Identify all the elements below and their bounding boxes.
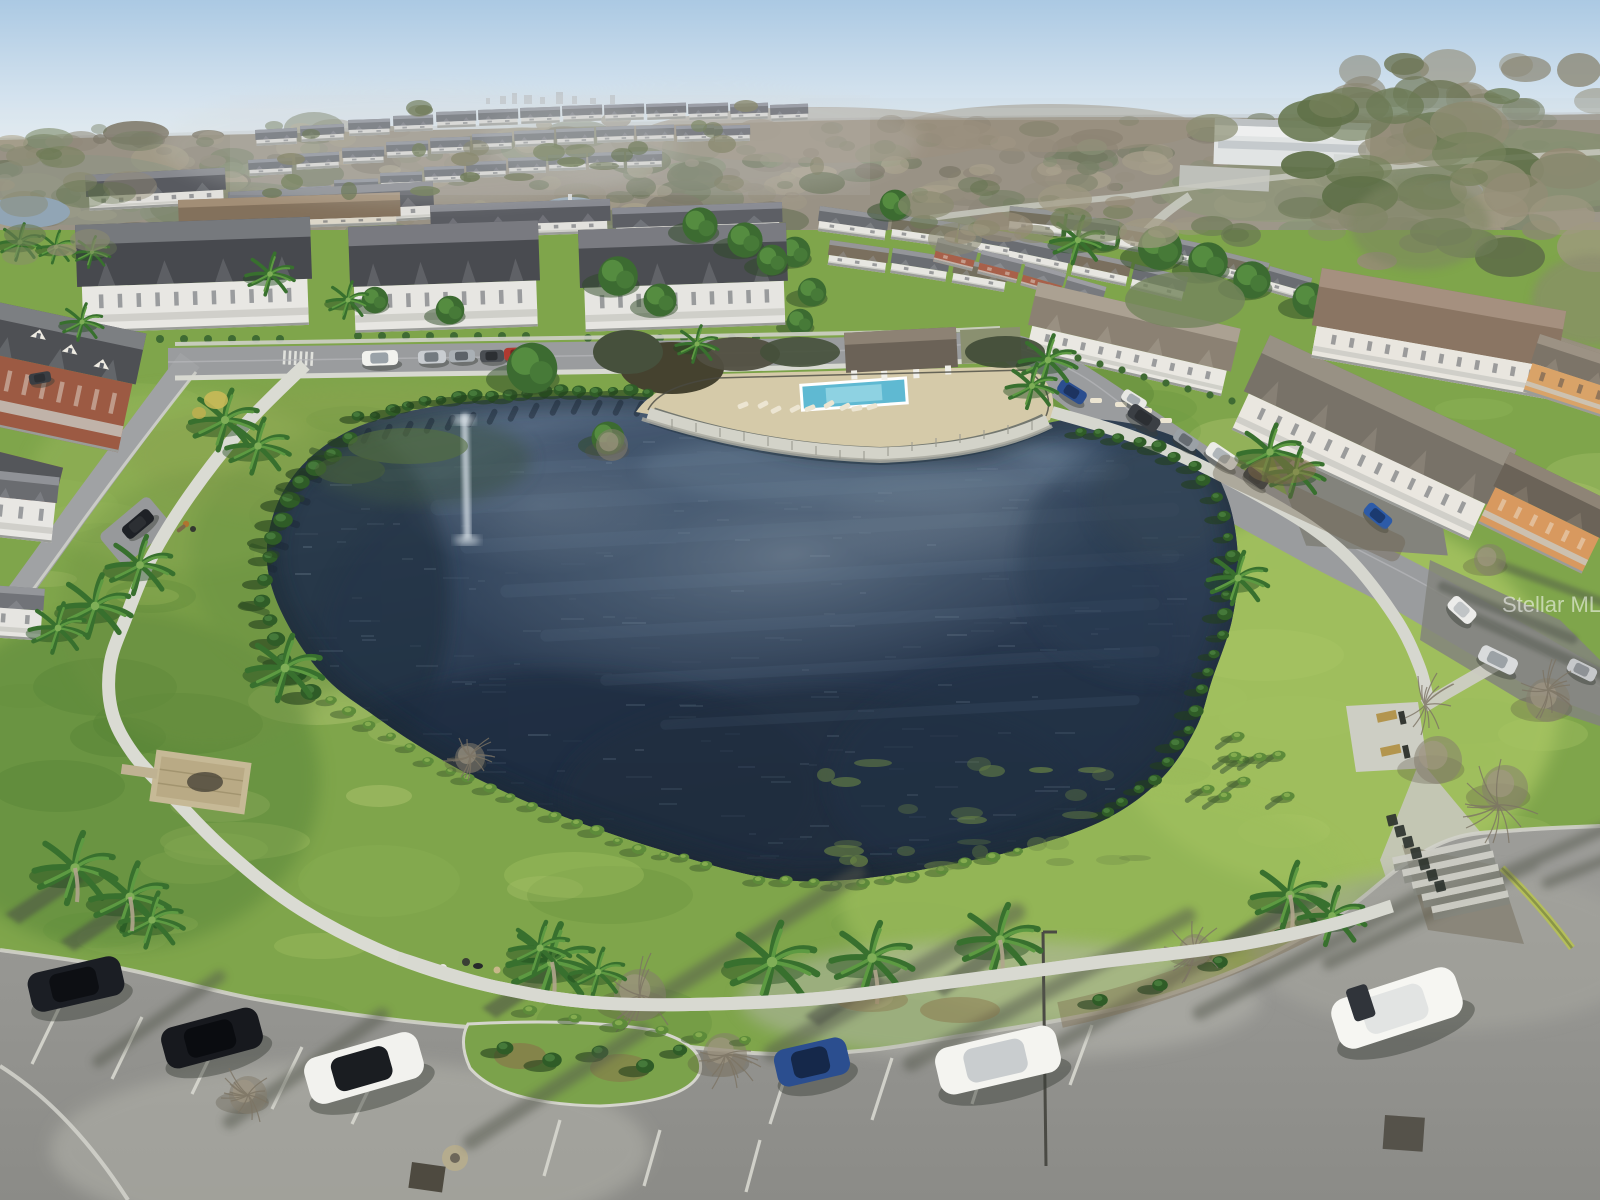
- svg-text:Stellar MLS: Stellar MLS: [1502, 592, 1600, 617]
